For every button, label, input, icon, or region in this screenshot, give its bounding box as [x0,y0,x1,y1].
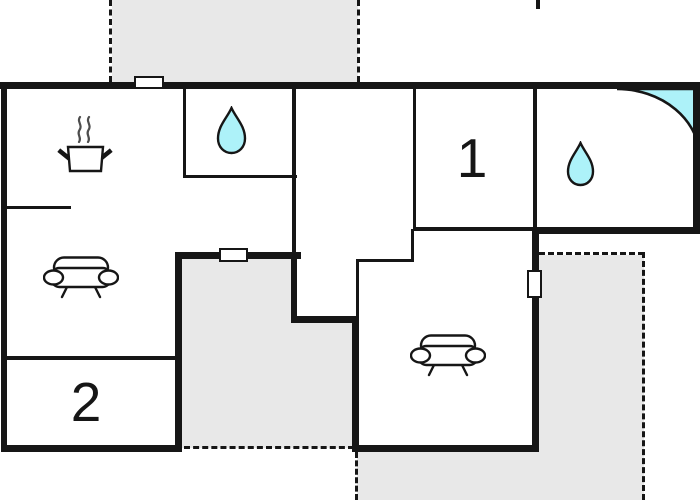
terrace-boundary-right-top [539,252,644,255]
floor-plan-canvas: 1 2 [0,0,700,500]
wall-kitchen-stub [1,206,71,209]
wall-right-outer [693,82,700,234]
terrace-boundary-top-right [357,0,360,82]
wall-step2-vertical [356,259,359,319]
terrace-boundary-right-edge [642,252,645,500]
wall-bathroom-right-bottom [532,227,700,234]
wall-top [0,82,700,89]
terrace-boundary-courtyard-bottom [184,446,354,449]
wall-courtyard-left [175,252,182,452]
wall-right-lower [532,230,539,452]
wall-corridor-right [291,256,297,323]
wall-step-vertical [352,316,359,452]
courtyard-middle-upper [181,258,294,448]
wall-room2-top [1,356,178,360]
sofa-icon [410,334,486,378]
terrace-top [112,0,358,82]
wall-room1-left [413,89,416,230]
window-courtyard-wall [219,248,248,262]
wall-left [1,82,7,452]
terrace-boundary-bottom-left [355,452,358,500]
terrace-boundary-top-left [109,0,112,82]
sofa-icon [43,256,119,300]
room-label-2: 2 [55,375,117,429]
water-drop-icon [566,141,595,187]
terrace-boundary-dash [536,0,540,9]
window-top-wall [134,76,164,89]
wall-living2-bottom [352,445,539,452]
wall-corridor-bottom [291,316,359,323]
stove-pot-icon [56,110,114,176]
wall-room1-bottom [413,227,536,231]
wall-bathroom-mid-left [183,89,186,178]
water-drop-icon [216,106,247,155]
terrace-right-bottom [357,452,644,500]
corner-shower-icon [616,89,700,159]
wall-step-horizontal [356,259,414,262]
wall-bathroom-mid-bottom [183,175,297,178]
wall-bathroom-right-left [533,89,537,230]
wall-bottom-left [1,445,181,452]
window-living2-wall [527,270,542,298]
room-label-1: 1 [441,131,503,185]
wall-mid-partition [292,89,296,259]
courtyard-middle-lower [294,320,354,448]
wall-step1-vertical [411,229,414,262]
